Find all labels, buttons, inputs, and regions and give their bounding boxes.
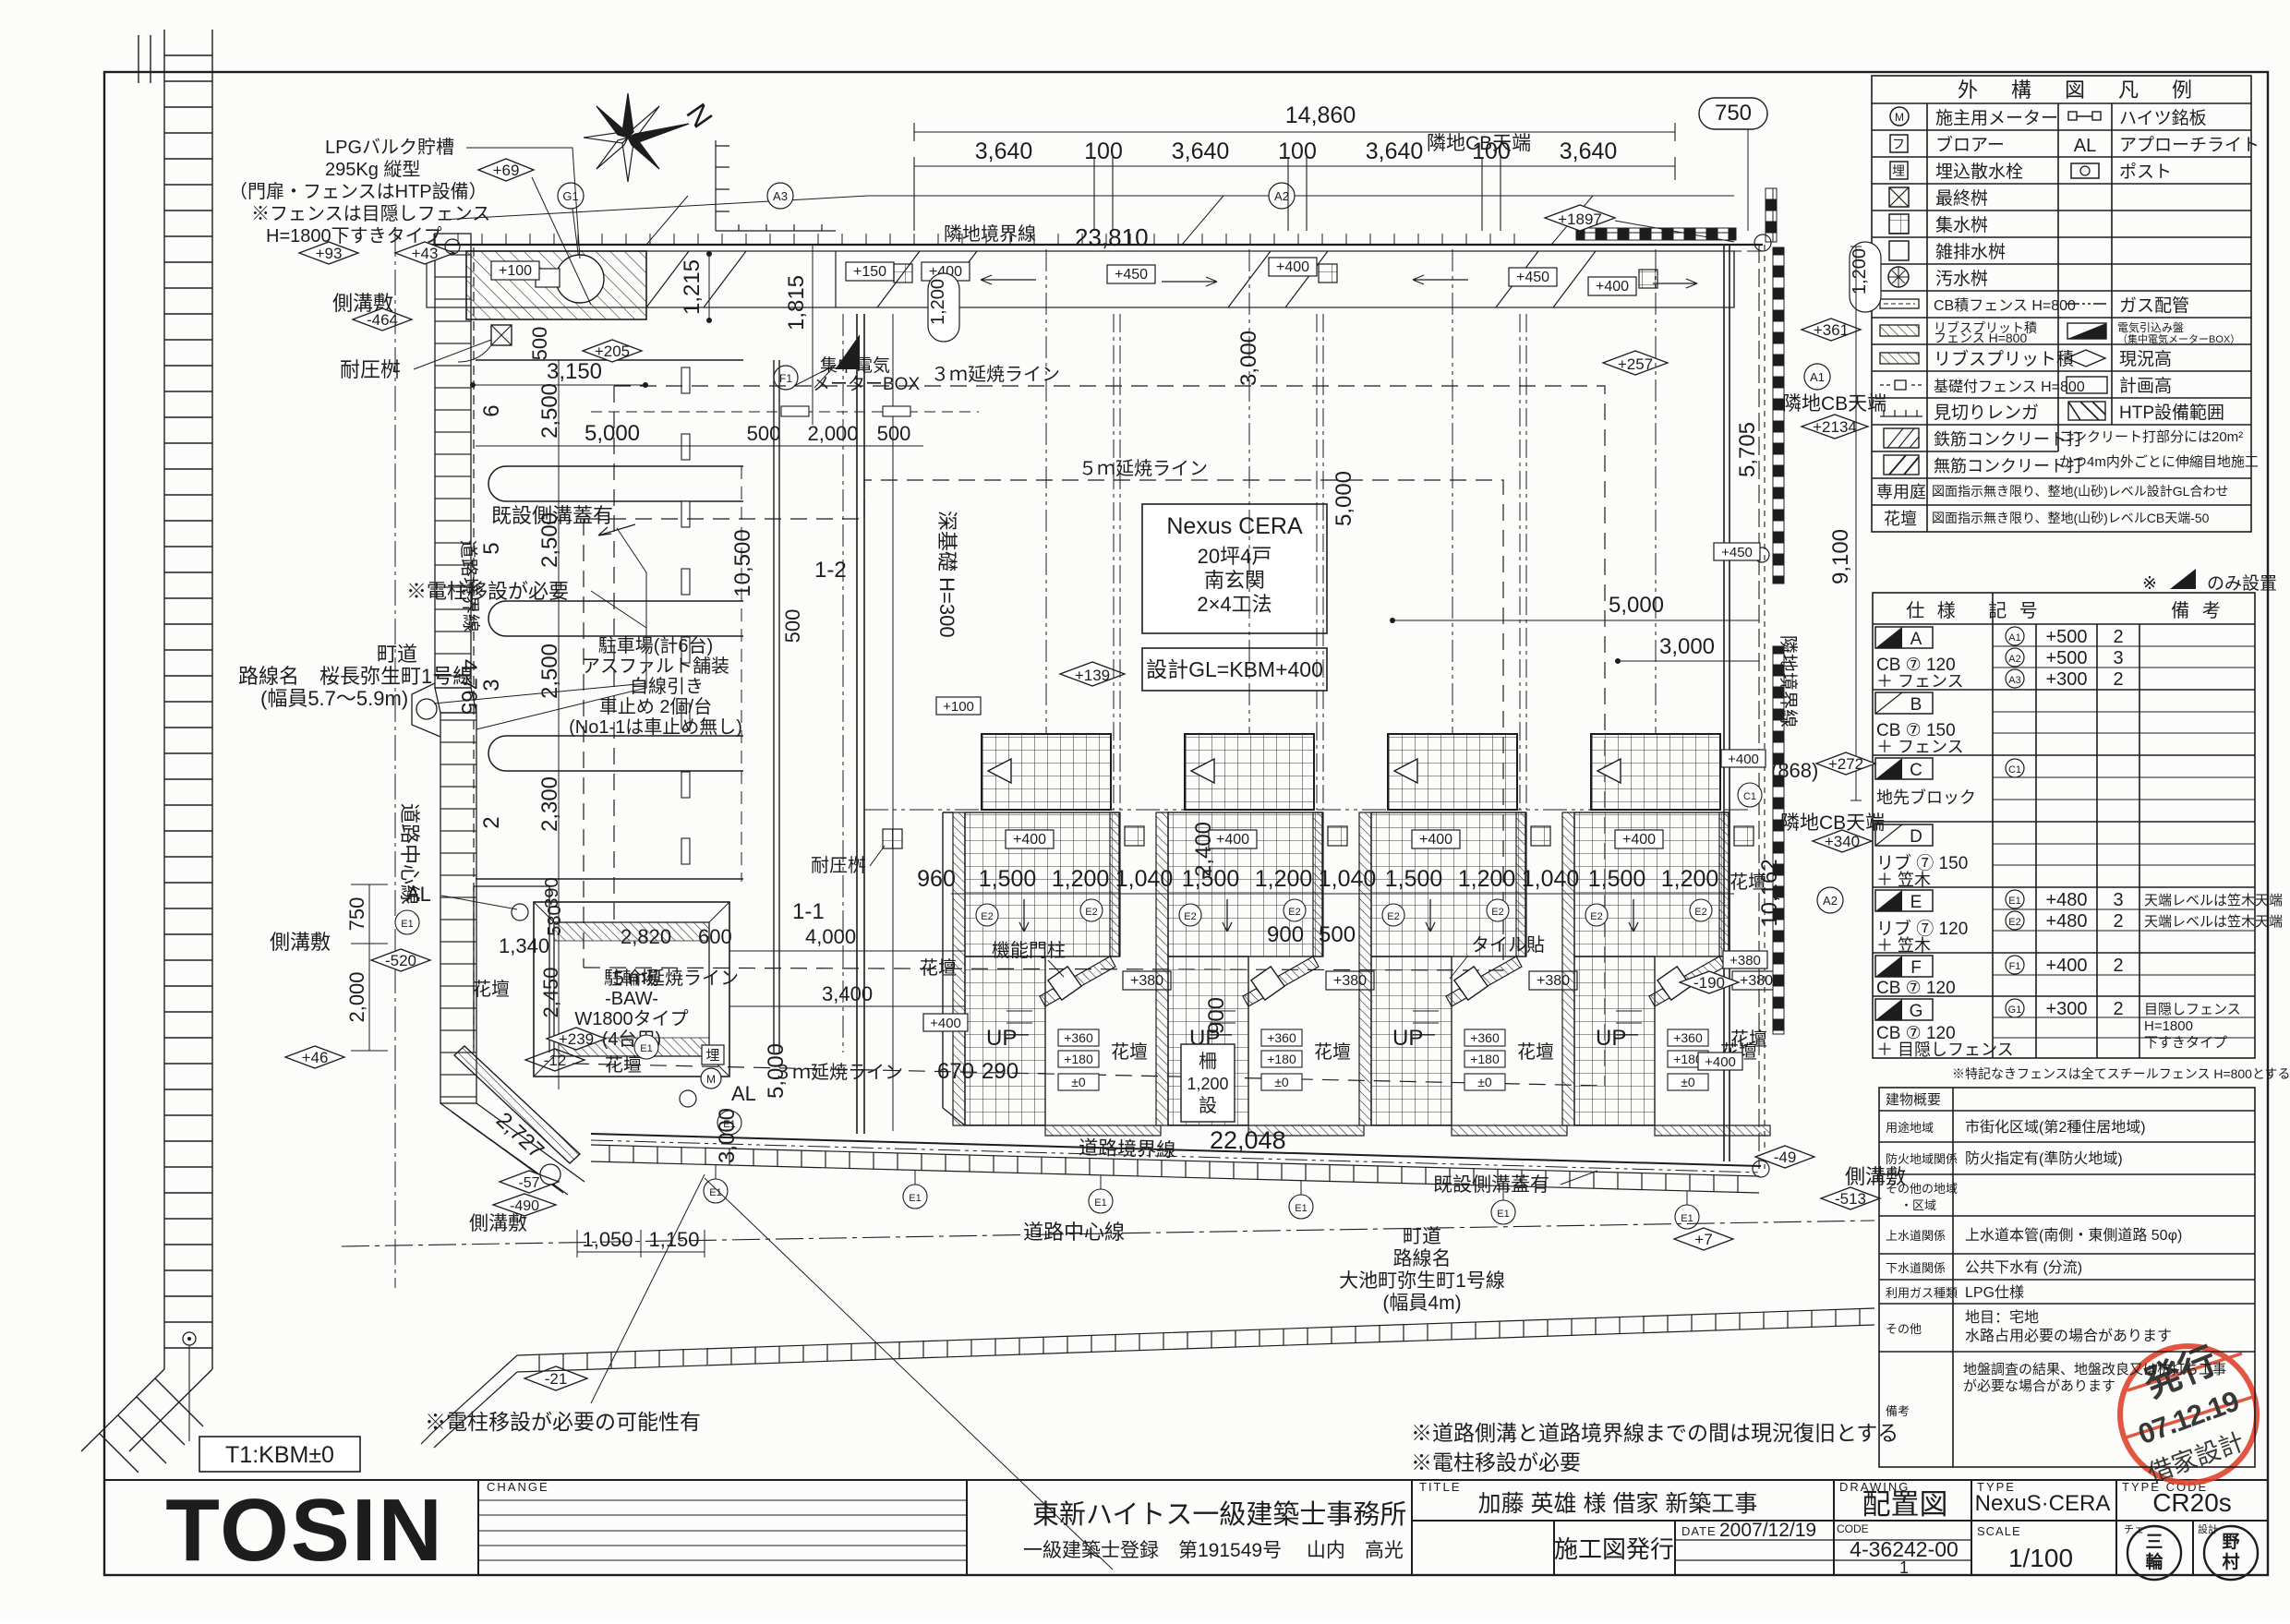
svg-text:側溝敷: 側溝敷 — [469, 1213, 527, 1234]
svg-text:E: E — [1910, 893, 1922, 912]
svg-text:花壇: 花壇 — [920, 957, 957, 979]
svg-text:＋ フェンス: ＋ フェンス — [1876, 738, 1964, 756]
svg-text:大池町弥生町1号線: 大池町弥生町1号線 — [1339, 1270, 1505, 1292]
svg-text:1,200: 1,200 — [1850, 248, 1870, 295]
svg-text:+400: +400 — [1216, 832, 1249, 848]
svg-text:天端レベルは笠木天端: 天端レベルは笠木天端 — [2144, 914, 2283, 930]
svg-text:LPG仕様: LPG仕様 — [1965, 1284, 2024, 1301]
svg-text:用途地域: 用途地域 — [1886, 1121, 1934, 1135]
svg-text:6: 6 — [479, 404, 504, 416]
svg-text:M: M — [1895, 111, 1904, 124]
svg-text:1,200: 1,200 — [1661, 866, 1719, 892]
svg-text:埋: 埋 — [705, 1048, 719, 1064]
svg-text:+480: +480 — [2045, 911, 2087, 932]
svg-text:290: 290 — [982, 1059, 1018, 1084]
svg-text:-BAW-: -BAW- — [605, 989, 658, 1009]
svg-text:A2: A2 — [2008, 654, 2020, 665]
svg-text:深基礎 H=300: 深基礎 H=300 — [935, 511, 958, 638]
svg-text:施工図発行: 施工図発行 — [1554, 1535, 1674, 1563]
svg-text:+500: +500 — [2045, 648, 2087, 668]
svg-text:E2: E2 — [1491, 907, 1503, 918]
svg-text:2,300: 2,300 — [537, 776, 562, 832]
svg-text:車止め 2個/台: 車止め 2個/台 — [599, 696, 712, 717]
svg-text:AL: AL — [2074, 136, 2096, 156]
svg-text:3,640: 3,640 — [1560, 138, 1618, 164]
svg-text:+450: +450 — [1115, 267, 1148, 283]
svg-text:+360: +360 — [1267, 1030, 1296, 1045]
svg-text:500: 500 — [781, 609, 804, 644]
svg-text:SCALE: SCALE — [1977, 1524, 2021, 1538]
svg-text:390: 390 — [542, 877, 562, 908]
svg-text:3,000: 3,000 — [1659, 634, 1715, 659]
svg-text:(幅員5.7～5.9m): (幅員5.7～5.9m) — [260, 687, 408, 710]
svg-text:５ｍ延焼ライン: ５ｍ延焼ライン — [1079, 458, 1208, 479]
svg-text:路線名 桜長弥生町1号線: 路線名 桜長弥生町1号線 — [238, 665, 473, 688]
svg-text:2: 2 — [2113, 669, 2123, 690]
svg-text:タイル貼: タイル貼 — [1471, 934, 1545, 956]
svg-text:1,200: 1,200 — [928, 279, 948, 325]
svg-text:水路占用必要の場合があります: 水路占用必要の場合があります — [1965, 1328, 2172, 1344]
svg-text:村: 村 — [2222, 1551, 2239, 1572]
svg-text:リブスプリット積: リブスプリット積 — [1934, 348, 2074, 369]
svg-text:Nexus CERA: Nexus CERA — [1166, 513, 1303, 539]
svg-text:３ｍ延焼ライン: ３ｍ延焼ライン — [931, 364, 1060, 385]
svg-text:汚水桝: 汚水桝 — [1935, 269, 1988, 289]
svg-text:防火地域関係: 防火地域関係 — [1886, 1152, 1958, 1166]
svg-text:+300: +300 — [2045, 999, 2087, 1019]
svg-text:+100: +100 — [499, 263, 532, 279]
svg-text:2,400: 2,400 — [1191, 822, 1216, 877]
svg-text:E2: E2 — [1387, 911, 1399, 922]
svg-text:隣地境界線: 隣地境界線 — [1778, 635, 1799, 728]
svg-text:2×4工法: 2×4工法 — [1197, 593, 1272, 616]
svg-text:利用ガス種類: 利用ガス種類 — [1886, 1286, 1958, 1300]
svg-text:750: 750 — [345, 897, 368, 932]
svg-text:+180: +180 — [1064, 1052, 1093, 1066]
svg-text:2,500: 2,500 — [537, 383, 562, 439]
svg-text:公共下水有 (分流): 公共下水有 (分流) — [1965, 1259, 2082, 1276]
svg-text:+400: +400 — [1419, 832, 1452, 848]
svg-text:下水道関係: 下水道関係 — [1886, 1261, 1946, 1275]
svg-text:-190: -190 — [1693, 974, 1725, 992]
svg-text:1,150: 1,150 — [648, 1228, 699, 1251]
svg-text:500: 500 — [1319, 922, 1356, 947]
svg-text:※特記なきフェンスは全てスチールフェンス H=800とする: ※特記なきフェンスは全てスチールフェンス H=800とする — [1952, 1066, 2290, 1081]
svg-text:3,640: 3,640 — [1366, 138, 1424, 164]
svg-text:道路境界線: 道路境界線 — [1079, 1137, 1176, 1161]
svg-text:+380: +380 — [1740, 973, 1773, 989]
svg-text:2,000: 2,000 — [345, 971, 368, 1022]
svg-text:+46: +46 — [302, 1049, 329, 1066]
svg-text:花壇: 花壇 — [473, 979, 510, 1000]
svg-text:ハイツ銘板: ハイツ銘板 — [2119, 108, 2207, 128]
svg-text:+239: +239 — [559, 1030, 594, 1048]
svg-text:(868): (868) — [1771, 759, 1818, 782]
svg-text:+180: +180 — [1267, 1052, 1296, 1066]
svg-text:５ｍ延焼ライン: ５ｍ延焼ライン — [609, 968, 739, 989]
svg-text:専用庭: 専用庭 — [1876, 483, 1926, 501]
svg-text:+205: +205 — [595, 343, 630, 360]
svg-text:フェンス H=800: フェンス H=800 — [1934, 331, 2027, 345]
svg-text:A2: A2 — [1823, 894, 1838, 908]
svg-text:埋込散水栓: 埋込散水栓 — [1935, 162, 2023, 182]
svg-text:+300: +300 — [2045, 669, 2087, 690]
svg-text:(No1-1は車止め無し): (No1-1は車止め無し) — [569, 716, 742, 738]
svg-text:E2: E2 — [1184, 911, 1196, 922]
svg-text:3: 3 — [2113, 648, 2123, 668]
svg-text:E1: E1 — [401, 919, 413, 930]
svg-text:駐車場(計6台): 駐車場(計6台) — [598, 635, 713, 656]
svg-text:路線名: 路線名 — [1393, 1248, 1452, 1269]
svg-text:2: 2 — [2113, 627, 2123, 647]
svg-text:+400: +400 — [1728, 752, 1759, 767]
svg-text:3,150: 3,150 — [547, 359, 602, 384]
svg-text:10,500: 10,500 — [730, 529, 755, 596]
svg-text:+400: +400 — [2045, 956, 2087, 976]
svg-text:G: G — [1910, 1002, 1923, 1021]
svg-text:下すきタイプ: 下すきタイプ — [2144, 1035, 2227, 1051]
svg-text:1,040: 1,040 — [1522, 866, 1580, 892]
svg-text:＋ 笠木: ＋ 笠木 — [1876, 871, 1931, 889]
svg-text:3: 3 — [479, 679, 504, 691]
svg-text:22,048: 22,048 — [1210, 1126, 1286, 1154]
svg-text:+450: +450 — [1721, 545, 1753, 560]
svg-text:+360: +360 — [1064, 1030, 1093, 1045]
svg-text:1,215: 1,215 — [680, 259, 705, 315]
svg-text:花壇: 花壇 — [1884, 510, 1917, 528]
svg-text:集中電気: 集中電気 — [820, 355, 890, 376]
svg-text:隣地CB天端: 隣地CB天端 — [1782, 393, 1886, 415]
svg-text:かつ4m内外ごとに伸縮目地施工: かつ4m内外ごとに伸縮目地施工 — [2059, 454, 2259, 470]
svg-text:295Kg 縦型: 295Kg 縦型 — [325, 159, 420, 180]
svg-text:1,040: 1,040 — [1319, 866, 1377, 892]
svg-text:F1: F1 — [2009, 961, 2021, 972]
svg-text:-21: -21 — [545, 1370, 568, 1388]
svg-text:町道: 町道 — [1403, 1226, 1441, 1247]
svg-text:CR20s: CR20s — [2152, 1488, 2232, 1517]
svg-text:-57: -57 — [518, 1175, 539, 1191]
svg-text:埋: 埋 — [1892, 163, 1905, 178]
svg-text:記 号: 記 号 — [1988, 600, 2042, 621]
svg-text:基礎付フェンス H=800: 基礎付フェンス H=800 — [1934, 379, 2085, 395]
svg-text:1/100: 1/100 — [2008, 1544, 2073, 1572]
svg-text:※道路側溝と道路境界線までの間は現況復旧とする: ※道路側溝と道路境界線までの間は現況復旧とする — [1411, 1421, 1898, 1445]
svg-text:1,200: 1,200 — [1458, 866, 1516, 892]
svg-text:白線引き: 白線引き — [630, 676, 704, 697]
svg-text:+500: +500 — [2045, 627, 2087, 647]
svg-text:機能門柱: 機能門柱 — [992, 940, 1066, 961]
svg-text:防火指定有(準防火地域): 防火指定有(準防火地域) — [1965, 1150, 2123, 1167]
svg-text:900: 900 — [1204, 997, 1229, 1034]
svg-text:備考: 備考 — [1886, 1404, 1910, 1418]
svg-text:+360: +360 — [1673, 1030, 1703, 1045]
svg-text:ガス配管: ガス配管 — [2119, 295, 2189, 316]
svg-text:960: 960 — [917, 866, 956, 892]
svg-text:天端レベルは笠木天端: 天端レベルは笠木天端 — [2144, 893, 2283, 908]
svg-text:5: 5 — [479, 542, 504, 554]
svg-text:が必要な場合があります: が必要な場合があります — [1963, 1378, 2115, 1394]
svg-text:アスファルト舗装: アスファルト舗装 — [582, 656, 729, 677]
svg-text:(幅員4m): (幅員4m) — [1382, 1293, 1461, 1314]
svg-text:1,200: 1,200 — [1255, 866, 1313, 892]
svg-text:花壇: 花壇 — [1314, 1041, 1351, 1063]
svg-text:2,820: 2,820 — [621, 925, 671, 948]
svg-text:2,500: 2,500 — [537, 512, 562, 568]
svg-text:5,000: 5,000 — [585, 421, 640, 446]
svg-text:+150: +150 — [853, 264, 886, 280]
svg-text:三: 三 — [2145, 1533, 2163, 1552]
svg-text:C: C — [1910, 761, 1922, 780]
svg-text:その他: その他 — [1886, 1322, 1922, 1336]
svg-text:±0: ±0 — [1477, 1075, 1492, 1089]
svg-text:E1: E1 — [1094, 1197, 1106, 1209]
svg-text:施主用メーター: 施主用メーター — [1935, 108, 2058, 128]
svg-text:花壇: 花壇 — [1517, 1041, 1554, 1063]
svg-text:1,500: 1,500 — [1588, 866, 1646, 892]
svg-text:上水道本管(南側・東側道路 50φ): 上水道本管(南側・東側道路 50φ) — [1965, 1227, 2182, 1244]
svg-text:※フェンスは目隠しフェンス: ※フェンスは目隠しフェンス — [251, 203, 490, 224]
svg-text:750: 750 — [1715, 101, 1752, 126]
svg-text:A1: A1 — [2008, 632, 2020, 644]
svg-text:E1: E1 — [1295, 1203, 1307, 1214]
svg-text:23,810: 23,810 — [1075, 223, 1149, 251]
svg-text:設計GL=KBM+400: 設計GL=KBM+400 — [1146, 657, 1323, 681]
svg-text:CODE: CODE — [1837, 1522, 1869, 1535]
svg-text:+400: +400 — [1276, 259, 1309, 275]
svg-text:耐圧桝: 耐圧桝 — [811, 855, 866, 876]
svg-text:メーターBOX: メーターBOX — [813, 374, 920, 394]
svg-text:雑排水桝: 雑排水桝 — [1935, 242, 2006, 262]
svg-text:※: ※ — [2142, 574, 2157, 594]
svg-text:A3: A3 — [2008, 675, 2020, 686]
svg-text:既設側溝蓋有: 既設側溝蓋有 — [1433, 1174, 1549, 1196]
svg-text:集水桝: 集水桝 — [1935, 215, 1988, 235]
svg-text:耐圧桝: 耐圧桝 — [340, 358, 401, 381]
svg-text:+400: +400 — [930, 1016, 961, 1031]
svg-text:B: B — [1910, 695, 1922, 715]
svg-text:+43: +43 — [412, 245, 439, 262]
svg-text:500: 500 — [877, 422, 911, 445]
svg-text:E2: E2 — [1288, 907, 1300, 918]
svg-text:H=1800下すきタイプ: H=1800下すきタイプ — [266, 225, 442, 247]
svg-text:4,000: 4,000 — [805, 925, 856, 948]
svg-text:+180: +180 — [1470, 1052, 1500, 1066]
svg-text:1,050: 1,050 — [582, 1228, 633, 1251]
svg-text:T1:KBM±0: T1:KBM±0 — [225, 1442, 334, 1468]
svg-text:3,640: 3,640 — [975, 138, 1033, 164]
svg-text:道路中心線: 道路中心線 — [1023, 1221, 1125, 1244]
svg-text:1,500: 1,500 — [1385, 866, 1443, 892]
svg-text:地盤調査の結果、地盤改良又は杭打ち工事: 地盤調査の結果、地盤改良又は杭打ち工事 — [1963, 1362, 2226, 1377]
svg-text:最終桝: 最終桝 — [1935, 188, 1988, 209]
svg-text:側溝敷: 側溝敷 — [1845, 1165, 1906, 1188]
svg-text:2,450: 2,450 — [539, 967, 562, 1017]
svg-text:20坪4戸: 20坪4戸 — [1198, 545, 1272, 568]
svg-text:図面指示無き限り、整地(山砂)レベル設計GL合わせ: 図面指示無き限り、整地(山砂)レベル設計GL合わせ — [1932, 484, 2228, 499]
svg-text:A3: A3 — [773, 189, 788, 203]
svg-text:+360: +360 — [1470, 1030, 1500, 1045]
svg-text:アプローチライト: アプローチライト — [2119, 135, 2260, 155]
svg-text:C1: C1 — [1743, 791, 1756, 802]
svg-text:※電柱移設が必要: ※電柱移設が必要 — [1411, 1450, 1581, 1474]
svg-text:+480: +480 — [2045, 890, 2087, 910]
svg-text:1,815: 1,815 — [784, 275, 809, 331]
svg-text:目隠しフェンス: 目隠しフェンス — [2144, 1002, 2241, 1017]
svg-text:東新ハイトス一級建築士事務所: 東新ハイトス一級建築士事務所 — [1032, 1499, 1406, 1530]
svg-text:1: 1 — [1899, 1558, 1909, 1577]
svg-text:CB積フェンス H=800: CB積フェンス H=800 — [1934, 297, 2076, 314]
svg-text:輪: 輪 — [2145, 1551, 2163, 1572]
svg-text:2: 2 — [2113, 956, 2123, 976]
svg-text:野: 野 — [2222, 1532, 2239, 1552]
svg-text:-513: -513 — [1835, 1190, 1866, 1208]
svg-text:３ｍ延焼ライン: ３ｍ延焼ライン — [774, 1062, 903, 1083]
svg-text:-490: -490 — [510, 1198, 539, 1214]
svg-text:2: 2 — [479, 816, 504, 828]
svg-text:E2: E2 — [1590, 911, 1602, 922]
svg-text:+400: +400 — [1596, 279, 1629, 295]
svg-text:コンクリート打部分には20m²: コンクリート打部分には20m² — [2059, 429, 2243, 445]
svg-text:H=1800: H=1800 — [2144, 1018, 2193, 1034]
svg-text:14,860: 14,860 — [1285, 102, 1356, 128]
svg-text:AL: AL — [731, 1082, 756, 1105]
svg-text:A1: A1 — [1810, 370, 1825, 384]
svg-text:E1: E1 — [909, 1193, 921, 1204]
svg-text:5,000: 5,000 — [1332, 471, 1356, 526]
svg-text:100: 100 — [1278, 138, 1317, 164]
svg-text:1,340: 1,340 — [499, 934, 549, 957]
svg-text:花壇: 花壇 — [1111, 1041, 1148, 1063]
svg-text:隣地境界線: 隣地境界線 — [944, 223, 1036, 245]
svg-text:F: F — [1910, 958, 1922, 978]
svg-text:3,640: 3,640 — [1172, 138, 1230, 164]
svg-text:D: D — [1910, 827, 1922, 847]
svg-text:+139: +139 — [1075, 667, 1110, 684]
svg-text:-520: -520 — [385, 952, 416, 969]
svg-text:5,705: 5,705 — [1735, 422, 1760, 477]
svg-text:（門扉・フェンスはHTP設備）: （門扉・フェンスはHTP設備） — [229, 181, 488, 202]
svg-text:F1: F1 — [779, 372, 792, 385]
svg-text:側溝敷: 側溝敷 — [270, 931, 331, 954]
svg-text:900: 900 — [1267, 922, 1304, 947]
svg-text:+400: +400 — [1622, 832, 1656, 848]
svg-text:+257: +257 — [1618, 355, 1653, 373]
svg-text:2,500: 2,500 — [537, 644, 562, 699]
svg-text:1-1: 1-1 — [792, 899, 825, 924]
svg-text:設計: 設計 — [2198, 1522, 2218, 1535]
svg-text:市街化区域(第2種住居地域): 市街化区域(第2種住居地域) — [1965, 1119, 2146, 1136]
svg-text:配置図: 配置図 — [1862, 1488, 1948, 1521]
svg-text:ブロアー: ブロアー — [1935, 134, 2005, 155]
svg-text:-49: -49 — [1774, 1149, 1797, 1166]
svg-text:1,040: 1,040 — [1115, 866, 1174, 892]
svg-text:フ: フ — [1892, 137, 1905, 151]
svg-text:UP: UP — [1596, 1026, 1626, 1051]
svg-text:＋ フェンス: ＋ フェンス — [1876, 672, 1964, 691]
svg-text:1,200: 1,200 — [1052, 866, 1110, 892]
svg-text:E1: E1 — [2008, 896, 2020, 907]
svg-text:CB ⑦ 120: CB ⑦ 120 — [1876, 979, 1956, 998]
svg-text:C1: C1 — [2008, 764, 2021, 776]
svg-text:+361: +361 — [1814, 321, 1849, 339]
svg-text:+100: +100 — [943, 699, 974, 715]
svg-text:A: A — [1910, 630, 1922, 649]
svg-text:500: 500 — [747, 422, 781, 445]
svg-text:+340: +340 — [1825, 833, 1860, 850]
svg-text:E1: E1 — [1681, 1213, 1693, 1224]
svg-text:TITLE: TITLE — [1419, 1480, 1461, 1494]
svg-text:+1897: +1897 — [1558, 211, 1602, 228]
svg-text:上水道関係: 上水道関係 — [1886, 1229, 1946, 1243]
svg-text:備 考: 備 考 — [2171, 600, 2224, 621]
svg-text:+400: +400 — [1013, 832, 1046, 848]
svg-text:+93: +93 — [316, 245, 343, 262]
svg-text:+2134: +2134 — [1813, 418, 1857, 436]
svg-text:±0: ±0 — [1274, 1075, 1289, 1089]
svg-text:＋ 笠木: ＋ 笠木 — [1876, 936, 1931, 955]
svg-text:花壇: 花壇 — [1730, 1029, 1767, 1050]
svg-text:AL: AL — [406, 883, 431, 906]
svg-text:±0: ±0 — [1071, 1075, 1086, 1089]
svg-text:設: 設 — [1199, 1095, 1217, 1116]
svg-text:+400: +400 — [1705, 1054, 1736, 1070]
svg-text:E1: E1 — [1497, 1209, 1509, 1220]
svg-text:地先ブロック: 地先ブロック — [1876, 788, 1976, 807]
svg-text:現況高: 現況高 — [2119, 349, 2172, 369]
svg-text:W1800タイプ: W1800タイプ — [574, 1008, 688, 1029]
svg-text:E2: E2 — [2008, 917, 2020, 928]
svg-text:外構図凡例: 外構図凡例 — [1958, 78, 2225, 102]
svg-text:2: 2 — [2113, 999, 2123, 1019]
svg-text:E2: E2 — [981, 911, 993, 922]
svg-text:LPGバルク貯槽: LPGバルク貯槽 — [325, 137, 454, 158]
svg-text:100: 100 — [1472, 138, 1511, 164]
svg-text:±0: ±0 — [1681, 1075, 1695, 1089]
svg-text:2: 2 — [2113, 911, 2123, 932]
svg-text:建物概要: 建物概要 — [1886, 1092, 1941, 1108]
svg-text:DATE: DATE — [1681, 1524, 1717, 1538]
svg-text:1-2: 1-2 — [814, 558, 847, 583]
svg-text:UP: UP — [986, 1026, 1017, 1051]
svg-text:9,100: 9,100 — [1828, 529, 1853, 584]
svg-text:1,500: 1,500 — [979, 866, 1037, 892]
svg-text:E1: E1 — [640, 1043, 652, 1054]
svg-text:10,162: 10,162 — [1757, 859, 1782, 926]
svg-text:地目：宅地: 地目：宅地 — [1965, 1309, 2039, 1326]
svg-text:-464: -464 — [367, 311, 398, 329]
svg-text:＋ 目隠しフェンス: ＋ 目隠しフェンス — [1876, 1041, 2014, 1059]
svg-text:仕 様: 仕 様 — [1906, 600, 1959, 621]
svg-text:500: 500 — [528, 327, 551, 361]
svg-text:5,000: 5,000 — [764, 1043, 789, 1099]
svg-text:+272: +272 — [1828, 755, 1863, 773]
svg-text:見切りレンガ: 見切りレンガ — [1934, 403, 2039, 423]
svg-text:町道: 町道 — [377, 643, 417, 666]
svg-text:2007/12/19: 2007/12/19 — [1719, 1520, 1816, 1541]
svg-text:+380: +380 — [1730, 953, 1761, 968]
svg-text:CHANGE: CHANGE — [487, 1480, 549, 1494]
svg-text:（集中電気メーターBOX）: （集中電気メーターBOX） — [2117, 332, 2240, 345]
svg-text:E2: E2 — [1694, 907, 1706, 918]
svg-text:加藤 英雄 様 借家 新築工事: 加藤 英雄 様 借家 新築工事 — [1478, 1491, 1758, 1517]
svg-text:花壇: 花壇 — [605, 1054, 642, 1076]
svg-text:柵: 柵 — [1199, 1051, 1217, 1072]
svg-text:UP: UP — [1392, 1026, 1423, 1051]
svg-text:HTP設備範囲: HTP設備範囲 — [2119, 403, 2224, 423]
svg-text:・区域: ・区域 — [1900, 1198, 1936, 1212]
svg-text:E2: E2 — [1085, 907, 1097, 918]
svg-text:一級建築士登録 第191549号 山内 高光: 一級建築士登録 第191549号 山内 高光 — [1023, 1540, 1404, 1561]
